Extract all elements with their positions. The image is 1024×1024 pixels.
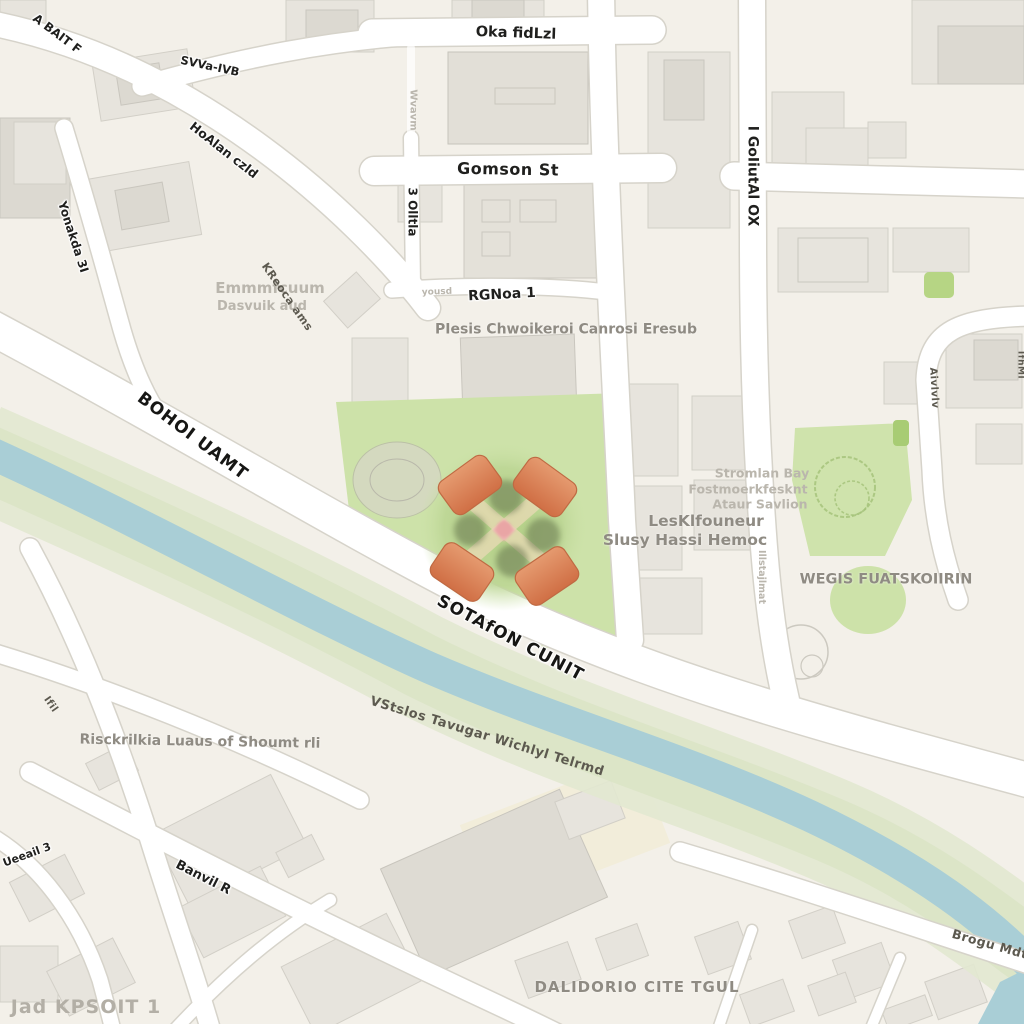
monument-plaza: [419, 443, 587, 611]
green-patch: [893, 420, 909, 446]
map[interactable]: A BAIT FSVVa-IVBHoAlan czldYonakda 3IOka…: [0, 0, 1024, 1024]
map-canvas: [0, 0, 1024, 1024]
green-patch: [924, 272, 954, 298]
